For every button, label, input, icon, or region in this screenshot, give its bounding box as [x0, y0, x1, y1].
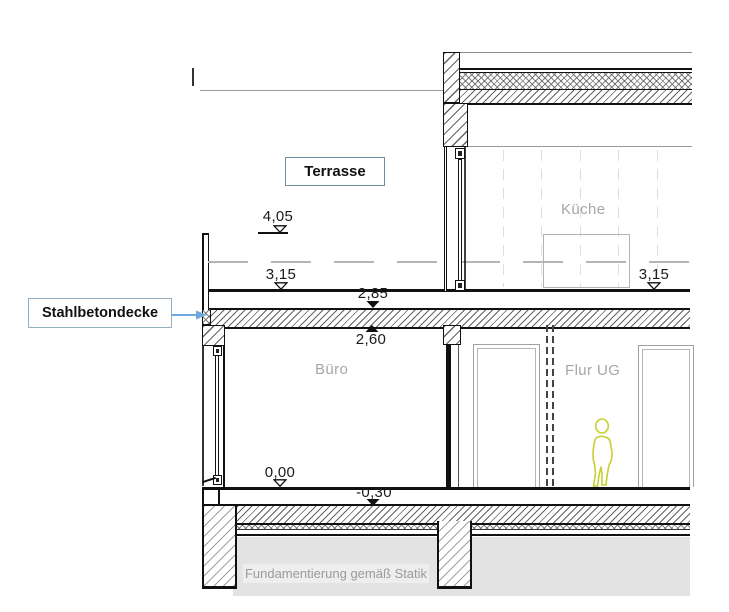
level-value: 2,60 [350, 332, 392, 348]
stahlbetondecke-annotation-text: Stahlbetondecke [42, 305, 158, 321]
kitchen-grid-line-2 [541, 150, 542, 287]
level-triangle-open-icon [647, 282, 661, 290]
foundation-note-label: Fundamentierung gemäß Statik [243, 564, 429, 583]
level-value: 3,15 [262, 267, 300, 283]
kitchen-window-frame-top-core [458, 151, 462, 156]
kitchen-window-frame-bottom [455, 280, 465, 291]
person-figure [585, 418, 619, 488]
kitchen-window-frame-top [455, 148, 465, 159]
screed-edge-left [202, 489, 204, 505]
long-gray-guide-line [200, 90, 443, 91]
level-marker-285: 2,85 [353, 286, 393, 308]
buero-wall-head [202, 325, 225, 346]
level-marker-315-right: 3,15 [635, 267, 673, 291]
roof-ceiling-line [468, 146, 692, 147]
screed-divider-line [218, 489, 220, 505]
buero-window-frame-top-core [216, 349, 219, 353]
roof-wall-block [443, 103, 468, 147]
terrace-parapet-wall [202, 233, 209, 310]
interior-wall-core [446, 345, 451, 487]
kitchen-grid-line-1 [503, 150, 504, 287]
strip-footing-left [202, 506, 237, 589]
level-marker-minus030: -0,30 [350, 485, 398, 506]
kitchen-window-jamb-left [444, 147, 447, 291]
buero-window-jamb-right [223, 346, 225, 487]
roof-parapet-upper [443, 52, 460, 103]
roof-insulation [460, 73, 692, 90]
door-frame-left-inner [477, 348, 536, 487]
kitchen-window-jamb-right [464, 147, 466, 291]
architectural-section-drawing: Fundamentierung gemäß Statik [0, 0, 729, 612]
level-underline [258, 232, 288, 234]
room-label-kueche: Küche [561, 201, 606, 218]
subbase-line-left [233, 534, 437, 536]
subbase-line-right [468, 534, 690, 536]
level-marker-260: 2,60 [350, 325, 392, 348]
level-marker-405: 4,05 [257, 209, 299, 235]
level-triangle-filled-icon [366, 499, 380, 506]
level-triangle-open-icon [273, 479, 287, 487]
interior-wall-face-line [458, 345, 459, 487]
room-label-flur-ug: Flur UG [565, 362, 620, 379]
kitchen-counter-outline [543, 234, 630, 288]
dashed-section-line-1 [546, 325, 548, 487]
room-label-buero: Büro [315, 361, 348, 378]
terrasse-annotation-box[interactable]: Terrasse [285, 157, 385, 186]
door-frame-right-inner [642, 349, 690, 487]
level-value: 4,05 [257, 209, 299, 225]
stahlbetondecke-annotation-box[interactable]: Stahlbetondecke [28, 298, 172, 328]
buero-window-glazing-bar [215, 355, 219, 476]
level-triangle-filled-icon [366, 301, 380, 308]
level-marker-315-left: 3,15 [262, 267, 300, 291]
level-value: 3,15 [635, 267, 673, 283]
buero-window-jamb-left [202, 346, 204, 486]
interior-wall-head [443, 325, 461, 345]
roof-concrete-slab [460, 90, 692, 105]
level-triangle-open-icon [274, 282, 288, 290]
level-value: 2,85 [353, 286, 393, 302]
tick-mark [192, 68, 194, 86]
kitchen-window-glazing-bar [458, 159, 462, 282]
foundation-note-text: Fundamentierung gemäß Statik [245, 566, 427, 581]
buero-window-frame-bottom-core [216, 478, 219, 482]
level-marker-000: 0,00 [260, 465, 300, 488]
downstand-beam [437, 521, 472, 589]
roof-edge-gray-line [460, 52, 692, 53]
kitchen-window-frame-bottom-core [458, 283, 462, 288]
callout-arrow-head-icon [196, 310, 207, 320]
callout-arrow-line [172, 314, 198, 316]
dashed-section-line-2 [552, 325, 554, 487]
terrasse-annotation-text: Terrasse [304, 163, 365, 180]
